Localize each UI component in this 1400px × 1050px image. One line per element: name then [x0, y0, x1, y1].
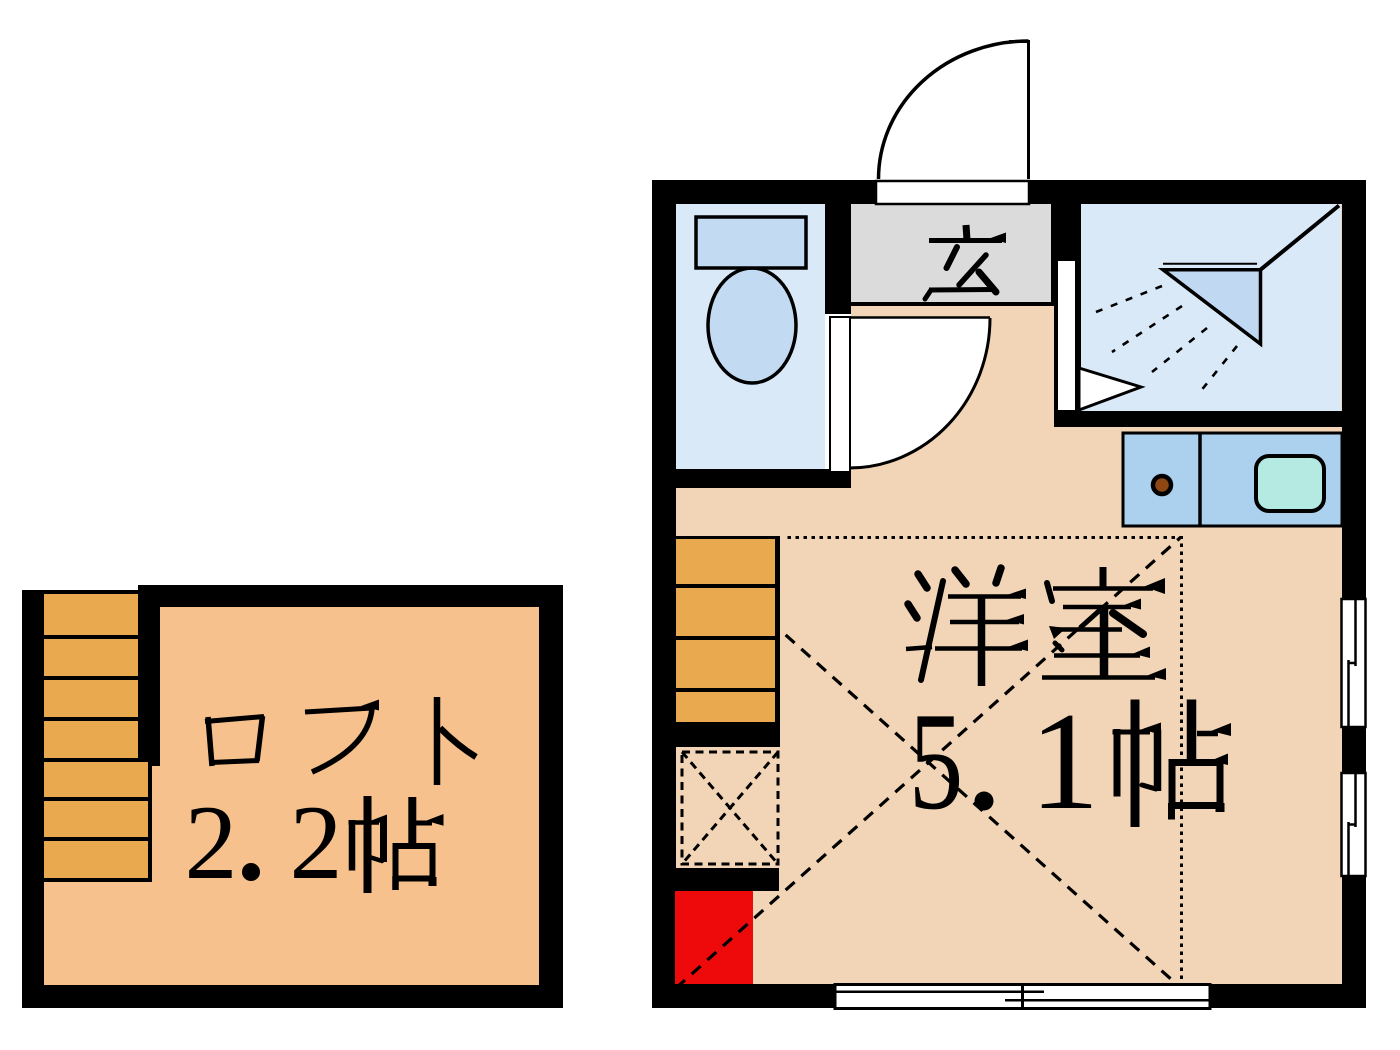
svg-text:2: 2 — [185, 784, 238, 901]
svg-text:5: 5 — [909, 684, 964, 839]
svg-text:1: 1 — [1030, 684, 1100, 839]
svg-text:2: 2 — [290, 784, 343, 901]
